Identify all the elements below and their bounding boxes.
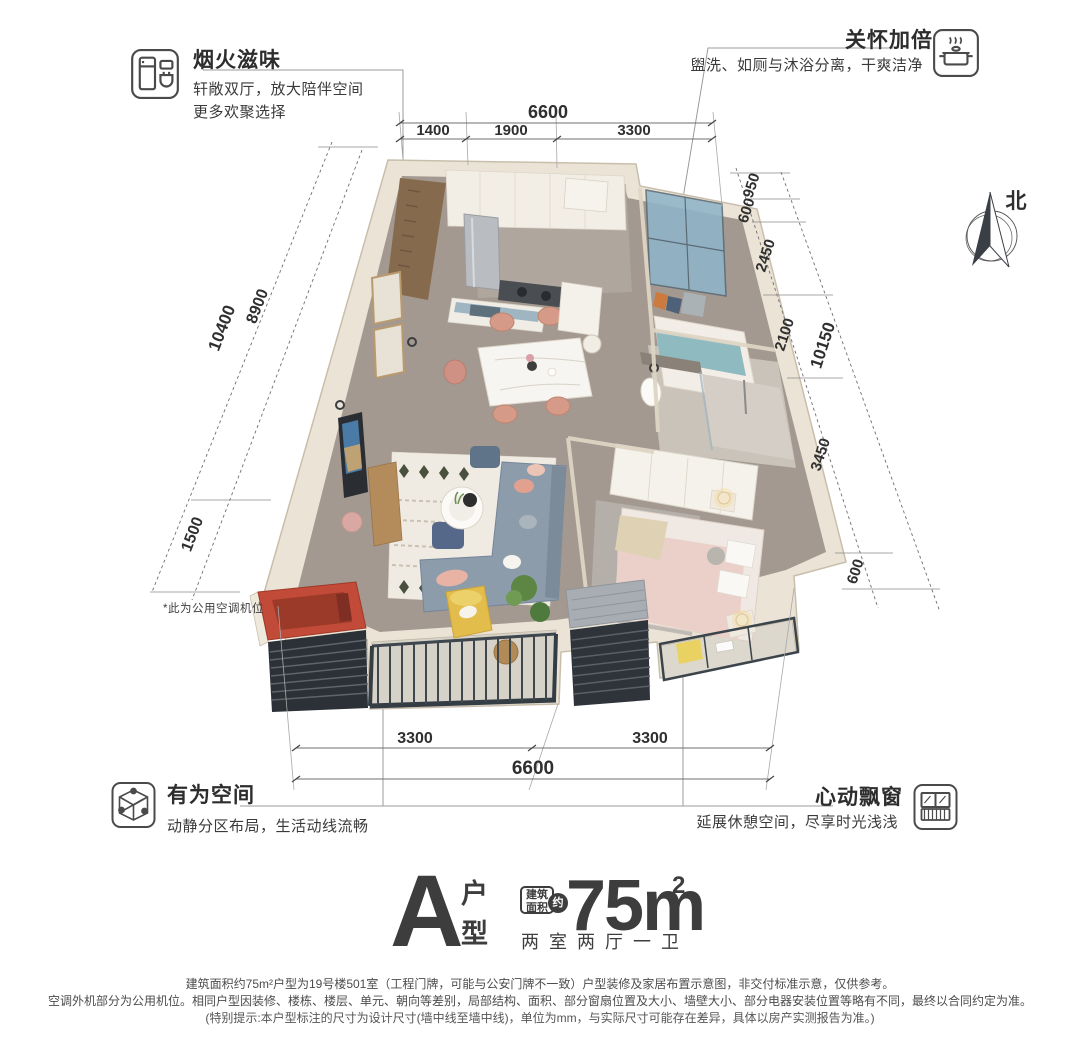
feature-title-xindong: 心动飘窗 [815, 781, 903, 811]
dining-table [478, 338, 592, 406]
dining-chair [490, 313, 514, 331]
plant [530, 602, 550, 622]
disclaimer-line-1: 建筑面积约75m²户型为19号楼501室（工程门牌，可能与公安门牌不一致）户型装… [0, 976, 1080, 993]
space-cube-icon [110, 781, 160, 835]
feature-desc: 更多欢聚选择 [193, 101, 286, 122]
dim-bottom: 3300 3300 6600 [292, 730, 774, 782]
svg-text:1400: 1400 [416, 122, 449, 139]
lamp [718, 492, 730, 504]
svg-text:600: 600 [844, 557, 868, 586]
dining-chair [546, 397, 570, 415]
entry-door [564, 178, 608, 212]
fridge-appliance-icon [130, 47, 180, 101]
feature-desc: 动静分区布局，生活动线流畅 [167, 815, 369, 836]
wall-art [374, 324, 404, 378]
tray [463, 493, 477, 507]
floor-plan-svg: 6600 1400 1900 3300 10400 8900 1500 [0, 0, 1080, 1037]
cushion [527, 464, 545, 476]
red-ac-unit [250, 582, 368, 712]
bay-window-icon [912, 783, 962, 837]
unit-letter: A [390, 870, 464, 954]
feature-desc: 延展休憩空间，尽享时光浅浅 [696, 811, 898, 832]
knit-pillow [707, 547, 725, 565]
fridge [464, 214, 500, 290]
feature-title-youwei: 有为空间 [167, 779, 255, 809]
north-label: 北 [1006, 190, 1027, 213]
side-table [342, 512, 362, 532]
feature-title-yanhuo: 烟火滋味 [193, 44, 281, 74]
area-superscript: 2 [672, 872, 685, 900]
desk [558, 282, 602, 336]
unit-type-char-2: 型 [461, 921, 488, 948]
feature-desc: 盥洗、如厕与沐浴分离，干爽洁净 [690, 54, 923, 75]
glass-window [646, 190, 726, 296]
svg-text:3300: 3300 [632, 730, 668, 747]
feature-desc: 轩敞双厅，放大陪伴空间 [193, 78, 364, 99]
svg-text:6600: 6600 [528, 102, 568, 122]
public-ac-note: *此为公用空调机位 [163, 600, 264, 616]
ac-louver-right [566, 580, 650, 706]
desk-chair [583, 335, 601, 353]
cooking-pot-icon [932, 28, 982, 82]
cushion [519, 515, 537, 529]
unit-type-char-1: 户 [461, 881, 488, 908]
svg-text:8900: 8900 [243, 287, 272, 326]
svg-text:3300: 3300 [397, 730, 433, 747]
svg-text:10400: 10400 [205, 303, 240, 354]
apartment-plan [250, 160, 846, 712]
svg-text:10150: 10150 [806, 320, 839, 371]
north-arrow: 北 [966, 190, 1027, 267]
svg-text:950: 950 [740, 171, 764, 200]
svg-text:1500: 1500 [178, 515, 207, 554]
pouf [470, 446, 500, 468]
disclaimer-line-2: 空调外机部分为公用机位。相同户型因装修、楼栋、楼层、单元、朝向等差别，局部结构、… [0, 993, 1080, 1010]
feature-title-guanhuai: 关怀加倍 [845, 24, 933, 54]
pillow [681, 292, 706, 317]
cushion [514, 479, 534, 493]
rooms-description: 两室两厅一卫 [521, 928, 689, 954]
svg-text:3300: 3300 [617, 122, 650, 139]
approx-circle: 约 [548, 893, 568, 913]
svg-text:1900: 1900 [494, 122, 527, 139]
disclaimer-line-3: (特别提示:本户型标注的尺寸为设计尺寸(墙中线至墙中线)，单位为mm，与实际尺寸… [0, 1010, 1080, 1027]
svg-text:6600: 6600 [512, 758, 554, 779]
wall-art [372, 272, 402, 324]
dining-chair [493, 405, 517, 423]
dining-chair [444, 360, 466, 384]
floorplan-poster: 6600 1400 1900 3300 10400 8900 1500 [0, 0, 1080, 1037]
cushion [503, 555, 521, 569]
lamp [736, 614, 748, 626]
tv-console [368, 462, 402, 546]
plant [506, 590, 522, 606]
